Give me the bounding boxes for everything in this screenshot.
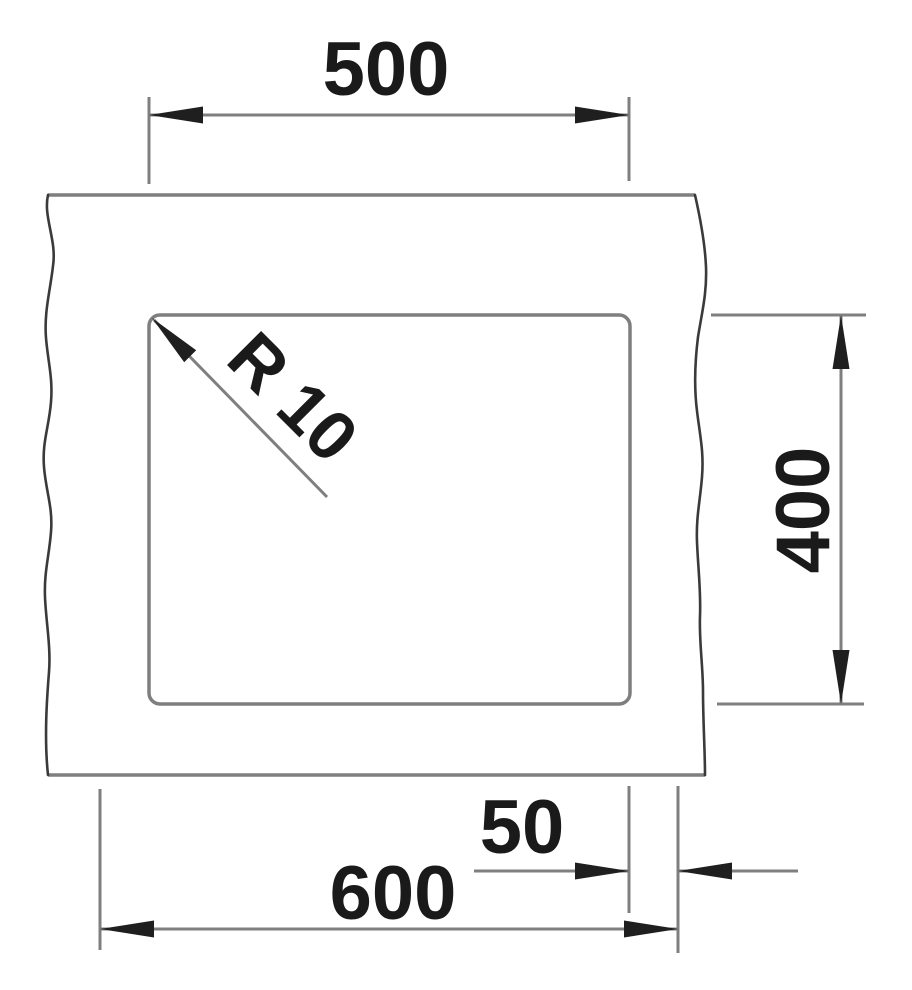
dimension-bowl-width: 500 [149,27,629,184]
arrowhead-right [624,921,678,938]
dimension-bowl-depth: 400 [711,315,866,704]
worktop-outline [44,195,706,775]
radius-callout: R 10 [152,317,373,497]
worktop-right-break-edge [695,195,706,775]
worktop-left-break-edge [44,195,54,775]
dim-label-600: 600 [330,851,457,936]
arrowhead-left [149,107,203,124]
arrowhead-corner [152,318,196,362]
dim-label-50: 50 [480,785,565,870]
drawing-canvas: 500 400 R 10 50 [0,0,912,990]
sink-cutout-technical-drawing: 500 400 R 10 50 [0,0,912,990]
arrowhead-right [575,107,629,124]
arrowhead-left [100,921,154,938]
dim-label-r10: R 10 [213,317,373,477]
dim-label-400: 400 [761,447,846,574]
arrowhead-left [678,863,732,880]
arrowhead-down [833,650,850,704]
arrowhead-up [833,315,850,369]
arrowhead-right [575,863,629,880]
dim-label-500: 500 [323,27,450,112]
